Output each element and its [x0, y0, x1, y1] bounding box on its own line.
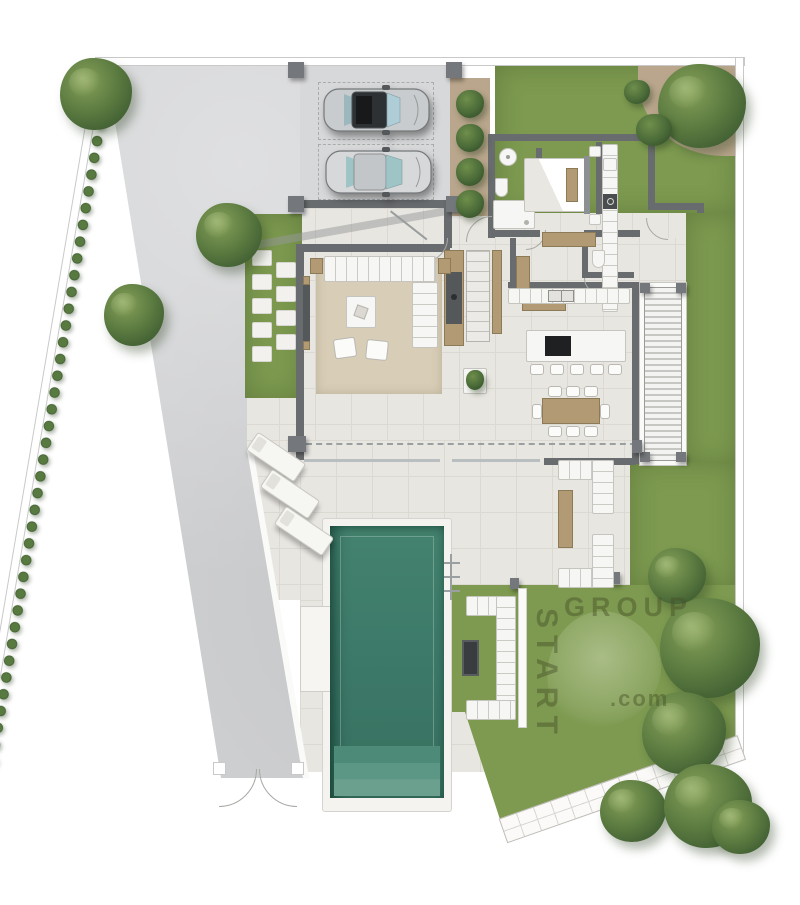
glass-sliding-door: [304, 459, 440, 462]
stepping-stone: [276, 334, 296, 350]
wall: [488, 134, 654, 141]
stepping-stone: [252, 274, 272, 290]
shower-drain: [524, 220, 529, 225]
tree: [600, 780, 666, 842]
pergola-post: [632, 440, 642, 453]
carport-pillar: [446, 62, 462, 78]
car-dark-roof: [322, 84, 432, 136]
dining-chair: [566, 386, 580, 397]
dining-chair: [600, 404, 610, 419]
stepping-stone: [276, 262, 296, 278]
dining-chair: [584, 426, 598, 437]
fire-pit: [462, 640, 479, 676]
bar-stool: [550, 364, 564, 375]
pool-ladder-rung: [444, 562, 460, 564]
watermark-group: GROUP: [564, 592, 693, 623]
stepping-stone: [252, 298, 272, 314]
bar-stool: [570, 364, 584, 375]
outdoor-sofa: [592, 534, 614, 588]
bar-stool: [590, 364, 604, 375]
nightstand: [589, 214, 601, 225]
bar-stool: [530, 364, 544, 375]
fence-north: [95, 57, 745, 66]
wall: [648, 203, 704, 210]
armchair: [365, 339, 389, 361]
pergola-post: [288, 436, 306, 452]
wardrobe: [542, 232, 596, 247]
dining-table: [542, 398, 600, 424]
toilet: [592, 250, 605, 268]
washing-machine-door: [607, 198, 614, 205]
stepping-stone: [252, 346, 272, 362]
tv-console: [303, 284, 310, 342]
overhang-dashed-line: [306, 443, 636, 445]
deck-post: [676, 283, 686, 293]
side-table: [438, 258, 451, 274]
sofa: [412, 282, 438, 348]
toilet: [495, 178, 508, 197]
tree: [712, 800, 770, 854]
pool-ladder-rung: [444, 590, 460, 592]
deck-post: [640, 283, 650, 293]
glass-sliding-door: [452, 459, 540, 462]
tv-console-cap: [303, 276, 310, 285]
wall: [697, 203, 704, 213]
garden-sofa: [466, 700, 516, 720]
deck-post: [676, 452, 686, 462]
sofa: [324, 256, 436, 282]
watermark-start: START: [529, 608, 563, 741]
laundry-sink: [603, 158, 617, 171]
floor-plan-canvas: GROUP START .com: [0, 0, 800, 905]
outdoor-table: [558, 490, 573, 548]
stepping-stone: [276, 286, 296, 302]
tv-console-cap: [303, 341, 310, 350]
staircase: [466, 250, 490, 342]
car-silver: [324, 146, 434, 198]
pool-steps: [334, 746, 440, 796]
stepping-stone: [276, 310, 296, 326]
stair-wood-panel: [492, 250, 502, 334]
deck-post: [640, 452, 650, 462]
kitchen-sink: [548, 290, 574, 302]
hedge-west: [0, 64, 117, 778]
outdoor-sofa: [592, 460, 614, 514]
kitchen-island: [526, 330, 626, 362]
lawn-east-upper: [686, 213, 737, 463]
side-table: [310, 258, 323, 274]
watermark-com: .com: [610, 686, 669, 712]
bar-stool: [608, 364, 622, 375]
fireplace-dot: [451, 294, 457, 300]
stepping-stone: [252, 322, 272, 338]
carport-pillar: [288, 62, 304, 78]
dining-chair: [566, 426, 580, 437]
dining-chair: [532, 404, 542, 419]
bathroom-sink-dot: [506, 155, 510, 159]
armchair: [333, 337, 358, 360]
louvered-deck: [644, 287, 682, 461]
bed-throw: [566, 168, 578, 202]
bed-headboard: [584, 156, 590, 214]
pool-ladder-rung: [444, 576, 460, 578]
dining-chair: [548, 386, 562, 397]
garden-sofa-rim: [518, 588, 527, 728]
dining-chair: [548, 426, 562, 437]
wall: [288, 200, 458, 208]
cooktop: [545, 336, 571, 356]
pool-ledge: [300, 606, 334, 692]
carport-pillar: [288, 196, 304, 212]
dining-chair: [584, 386, 598, 397]
nightstand: [589, 146, 601, 157]
